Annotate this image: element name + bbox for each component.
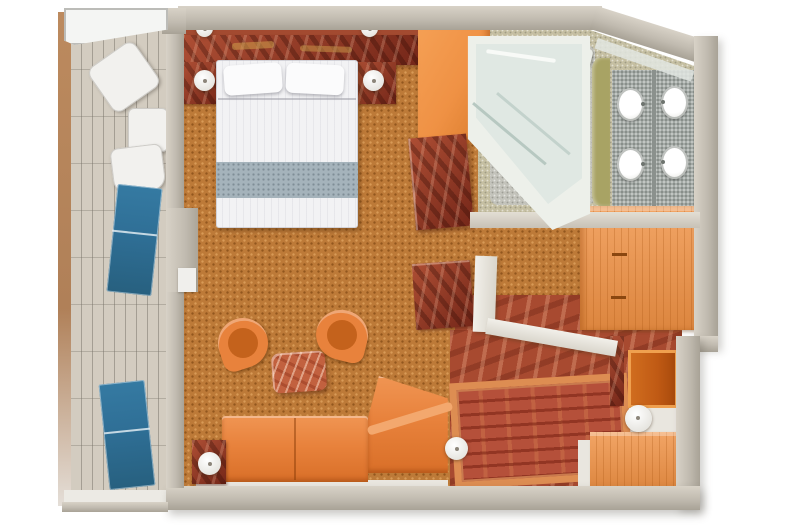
wall-right-lower xyxy=(676,336,700,508)
nightstand-lamp-left xyxy=(194,70,215,91)
tub-chair-1-seat xyxy=(228,328,258,358)
wardrobe-handle-2 xyxy=(611,296,626,299)
marble-dresser xyxy=(408,134,474,231)
faucet-2 xyxy=(661,100,665,104)
wall-bottom xyxy=(166,486,700,510)
entry-waste-bin xyxy=(625,405,652,432)
round-ottoman xyxy=(445,437,468,460)
wall-top xyxy=(178,6,602,30)
bed-accent-band xyxy=(216,162,358,198)
faucet-4 xyxy=(661,160,665,164)
vanity-khaki-edge xyxy=(592,58,610,206)
wardrobe-handle-1 xyxy=(612,253,627,256)
entry-cabinet xyxy=(590,432,690,490)
wall-balcony-bottom xyxy=(62,502,168,512)
bed-pillow-left xyxy=(223,62,283,96)
wall-right-upper xyxy=(694,36,718,348)
faucet-3 xyxy=(641,162,645,166)
faucet-1 xyxy=(641,102,645,106)
sink-4 xyxy=(661,146,688,179)
nightstand-lamp-right xyxy=(363,70,384,91)
suite-floorplan xyxy=(0,0,798,532)
sofa-cushion-seam xyxy=(294,418,296,480)
balcony-door-panel xyxy=(178,268,196,292)
side-table-lamp xyxy=(198,452,221,475)
balcony-rail xyxy=(58,12,71,506)
bed-pillow-right xyxy=(285,63,344,96)
marble-coffee-table xyxy=(271,350,328,394)
sink-2 xyxy=(661,86,688,119)
marble-writing-desk xyxy=(412,260,474,330)
sink-3 xyxy=(617,148,644,181)
tub-chair-2-seat xyxy=(327,320,357,350)
entry-door xyxy=(628,350,678,408)
bed-fold-line xyxy=(218,98,356,100)
sink-1 xyxy=(617,88,644,121)
